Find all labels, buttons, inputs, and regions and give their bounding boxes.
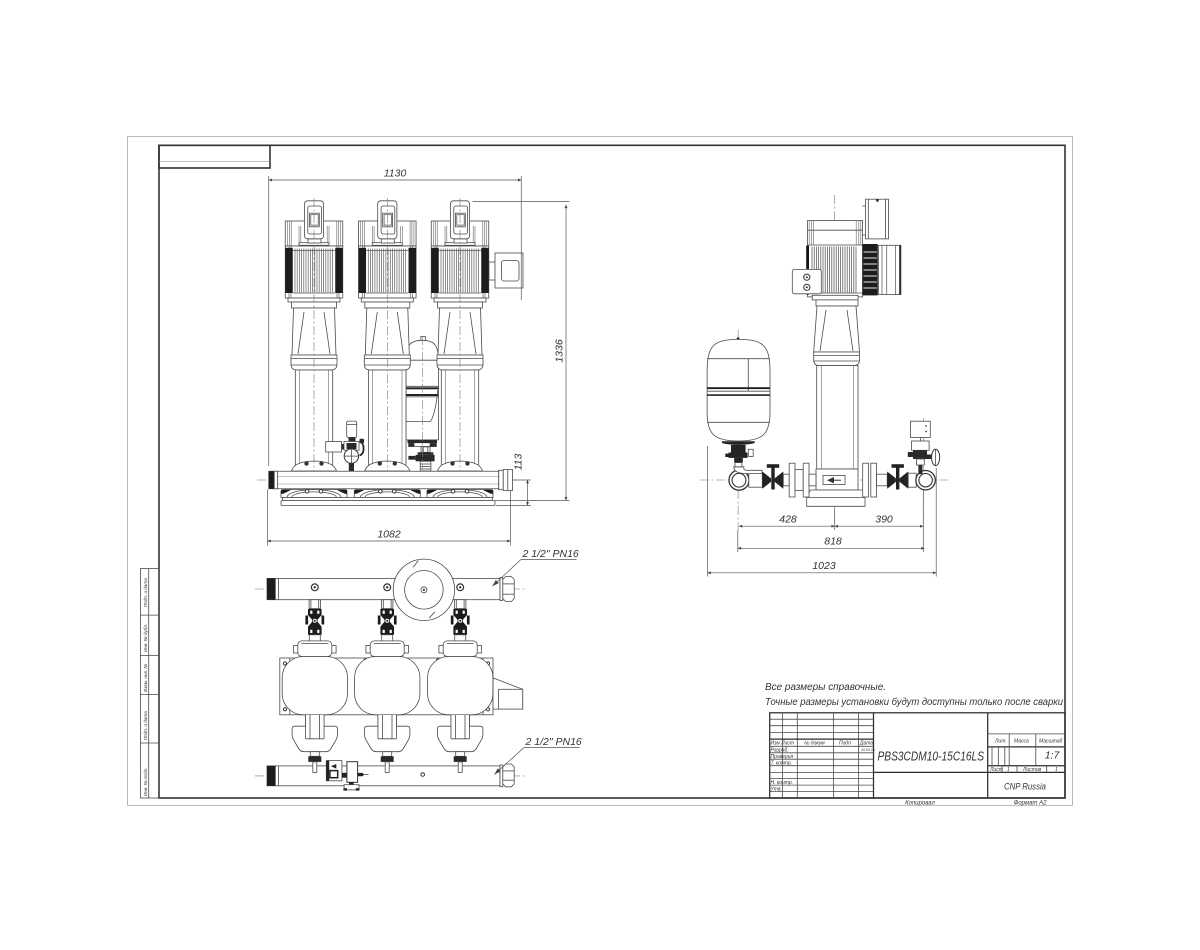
svg-text:№ докум: № докум [804, 741, 825, 747]
svg-text:1130: 1130 [384, 168, 407, 180]
svg-text:1:7: 1:7 [1045, 750, 1061, 762]
svg-text:Подп: Подп [839, 741, 851, 747]
svg-text:10.03.21: 10.03.21 [861, 748, 875, 752]
svg-text:Формат А2: Формат А2 [1014, 801, 1047, 807]
svg-text:Изм Лист: Изм Лист [771, 741, 795, 747]
svg-text:Масса: Масса [1014, 739, 1029, 745]
svg-text:1082: 1082 [377, 529, 401, 541]
svg-text:390: 390 [875, 514, 893, 526]
svg-text:113: 113 [513, 453, 525, 470]
svg-text:Н. контр.: Н. контр. [771, 780, 794, 786]
svg-text:Масштаб: Масштаб [1039, 739, 1063, 745]
svg-text:PBS3CDM10-15C16LS: PBS3CDM10-15C16LS [878, 749, 985, 764]
svg-text:Копировал: Копировал [905, 801, 935, 807]
svg-text:1: 1 [1007, 767, 1010, 773]
svg-text:Точные размеры установки будут: Точные размеры установки будут доступны … [765, 696, 1063, 708]
svg-text:Взам. инв. №: Взам. инв. № [143, 664, 148, 692]
svg-text:Лист: Лист [989, 767, 1003, 773]
svg-text:Дата: Дата [859, 741, 873, 747]
svg-text:Проверил: Проверил [771, 754, 794, 760]
svg-text:Инв. № дубл.: Инв. № дубл. [143, 624, 148, 652]
svg-text:1336: 1336 [554, 339, 566, 363]
svg-text:CNP Russia: CNP Russia [1004, 782, 1046, 792]
svg-text:Т. контр.: Т. контр. [771, 760, 793, 766]
svg-text:428: 428 [779, 514, 797, 526]
svg-text:Подп. и дата: Подп. и дата [143, 711, 148, 740]
svg-text:Инв. № подл.: Инв. № подл. [143, 767, 148, 796]
svg-text:1023: 1023 [812, 560, 836, 572]
svg-text:2 1/2" PN16: 2 1/2" PN16 [525, 736, 582, 748]
svg-text:Лит.: Лит. [994, 739, 1007, 745]
svg-text:Листов: Листов [1022, 767, 1042, 773]
svg-text:Разраб.: Разраб. [771, 747, 789, 753]
svg-text:2 1/2" PN16: 2 1/2" PN16 [522, 548, 579, 560]
svg-text:Подп. и дата: Подп. и дата [143, 578, 148, 607]
svg-text:Утв.: Утв. [771, 786, 782, 792]
svg-text:818: 818 [824, 536, 842, 548]
svg-text:1: 1 [1055, 767, 1058, 773]
svg-text:Все размеры справочные.: Все размеры справочные. [765, 681, 886, 693]
